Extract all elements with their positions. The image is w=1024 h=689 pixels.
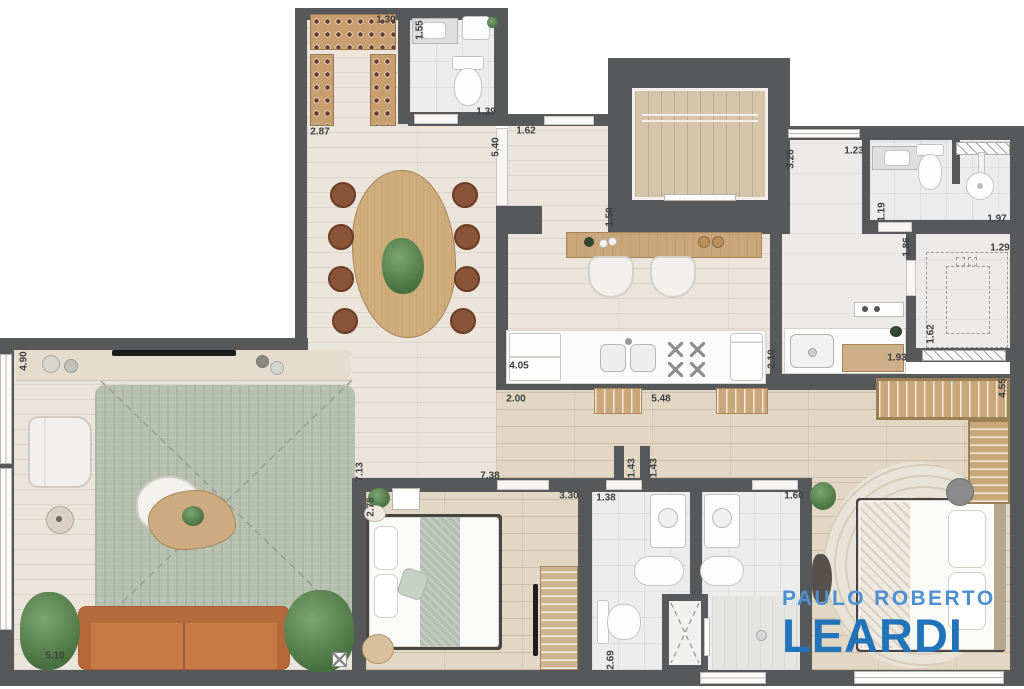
- dimension-label: 1.23: [844, 146, 863, 157]
- dimension-label: 4.05: [509, 361, 528, 372]
- dimension-label: 1.62: [516, 126, 535, 137]
- dimension-label: 4.55: [998, 378, 1009, 397]
- dimension-label: 7.38: [480, 471, 499, 482]
- dimension-label: 1.19: [877, 202, 888, 221]
- dimension-label: 1.60: [784, 491, 803, 502]
- dimension-label: 2.00: [506, 394, 525, 405]
- brand-name-line2: LEARDI: [782, 612, 1018, 659]
- dimension-label: 1.97: [987, 214, 1006, 225]
- dimension-label: 1.43: [649, 458, 660, 477]
- dimension-label: 1.62: [926, 324, 937, 343]
- dimension-label: 1.29: [990, 243, 1009, 254]
- dimension-label: 2.10: [767, 349, 778, 368]
- dimension-label: 3.26: [786, 149, 797, 168]
- dimension-label: 1.38: [596, 493, 615, 504]
- dimension-label: 1.50: [605, 207, 616, 226]
- floor-plan: 1.301.552.871.395.401.621.503.261.231.19…: [0, 0, 1024, 689]
- dimension-label: 7.13: [355, 462, 366, 481]
- dimension-label: 2.69: [606, 650, 617, 669]
- dimension-label: 2.87: [310, 127, 329, 138]
- dimension-label: 5.48: [651, 394, 670, 405]
- dimension-label: 1.43: [627, 458, 638, 477]
- dimension-label: 3.30: [559, 491, 578, 502]
- dimension-label: 5.40: [491, 137, 502, 156]
- brand-logo: PAULO ROBERTO LEARDI: [782, 588, 1018, 659]
- dimension-label: 1.30: [376, 15, 395, 26]
- dimension-label: 1.55: [415, 20, 426, 39]
- dimension-label: 4.90: [19, 351, 30, 370]
- dimension-label: 5.10: [45, 651, 64, 662]
- dimension-label: 1.93: [887, 353, 906, 364]
- dimension-labels-layer: 1.301.552.871.395.401.621.503.261.231.19…: [0, 0, 1024, 689]
- dimension-label: 2.75: [366, 497, 377, 516]
- brand-name-line1: PAULO ROBERTO: [782, 588, 1018, 609]
- dimension-label: 1.39: [476, 107, 495, 118]
- dimension-label: 1.86: [902, 237, 913, 256]
